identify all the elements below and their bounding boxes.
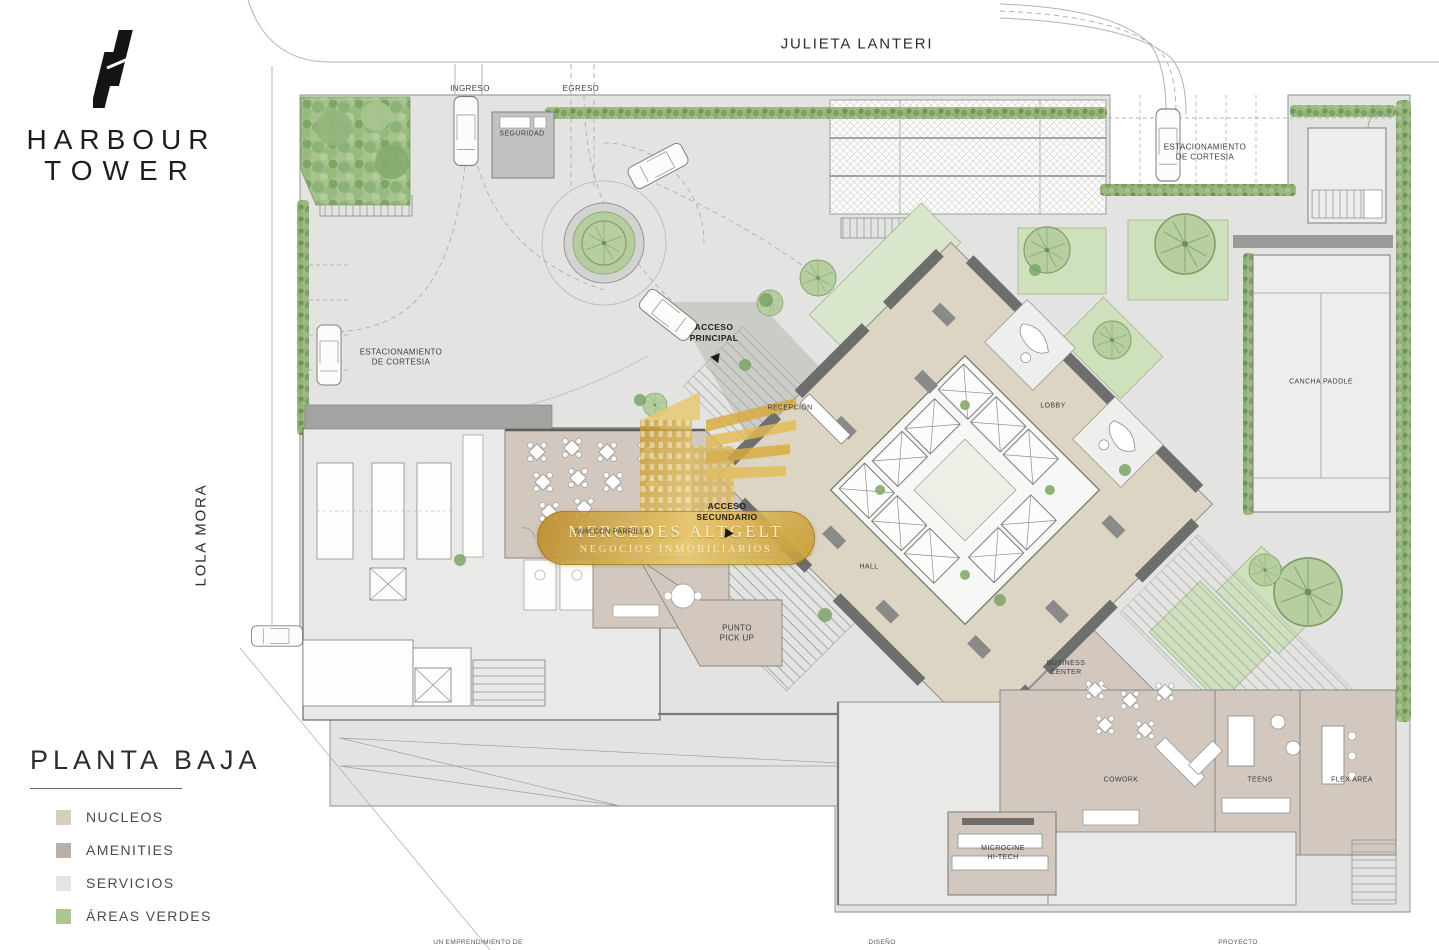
legend-item-servicios: SERVICIOS	[30, 875, 262, 891]
harbour-tower-logo-icon	[93, 28, 149, 110]
label-acceso-secundario: ACCESO SECUNDARIO	[696, 501, 757, 523]
paddle-court	[1233, 235, 1393, 512]
logo: HARBOUR TOWER	[26, 28, 216, 187]
legend: NUCLEOS AMENITIES SERVICIOS ÁREAS VERDES	[30, 809, 262, 924]
footer-proyecto: PROYECTO	[1218, 939, 1258, 947]
brand-line-1: HARBOUR	[26, 124, 216, 155]
label-egreso: EGRESO	[563, 84, 600, 94]
security-booth	[492, 112, 554, 178]
label-lobby: LOBBY	[1040, 401, 1065, 410]
label-microcine: MICROCINE HI-TECH	[981, 844, 1025, 862]
legend-item-areas-verdes: ÁREAS VERDES	[30, 908, 262, 924]
legend-swatch-areas-verdes	[56, 909, 71, 924]
street-label-julieta-lanteri: JULIETA LANTERI	[781, 34, 934, 54]
floor-plan-page: HARBOUR TOWER JULIETA LANTERI LOLA MORA …	[0, 0, 1439, 950]
legend-swatch-nucleos	[56, 810, 71, 825]
label-seguridad: SEGURIDAD	[499, 129, 544, 138]
legend-item-nucleos: NUCLEOS	[30, 809, 262, 825]
legend-swatch-servicios	[56, 876, 71, 891]
building-top-right	[1308, 112, 1386, 223]
plan-title: PLANTA BAJA	[30, 745, 262, 776]
label-recepcion: RECEPCIÓN	[767, 403, 812, 412]
watermark-tagline: NEGOCIOS INMOBILIARIOS	[580, 544, 773, 555]
label-estacionamiento-cortesia-left: ESTACIONAMIENTO DE CORTESIA	[360, 348, 443, 369]
legend-item-amenities: AMENITIES	[30, 842, 262, 858]
realtor-watermark: MERCEDES ALTGELT NEGOCIOS INMOBILIARIOS	[537, 511, 815, 565]
street-label-lola-mora: LOLA MORA	[191, 484, 211, 587]
label-punto-pick-up: PUNTO PICK UP	[720, 624, 755, 645]
label-hall: HALL	[859, 562, 878, 571]
label-sum-con-parrilla: SUM CON PARRILLA	[575, 527, 650, 536]
footer-diseno: DISEÑO	[868, 939, 895, 947]
label-cancha-paddle: CANCHA PADDLE	[1289, 377, 1353, 386]
footer-emprendimiento: UN EMPRENDIMIENTO DE	[433, 939, 523, 947]
label-flex-area: FLEX AREA	[1331, 775, 1373, 784]
label-estacionamiento-cortesia-right: ESTACIONAMIENTO DE CORTESIA	[1164, 143, 1247, 164]
label-acceso-principal: ACCESO PRINCIPAL	[690, 322, 739, 344]
garden-top-left	[301, 97, 410, 205]
title-rule	[30, 788, 182, 789]
label-cowork: COWORK	[1104, 775, 1139, 784]
parking-right	[1110, 95, 1256, 186]
label-business-center: BUSINESS CENTER	[1047, 659, 1086, 677]
brand-line-2: TOWER	[26, 155, 216, 186]
title-block: PLANTA BAJA NUCLEOS AMENITIES SERVICIOS …	[30, 745, 262, 941]
label-teens: TEENS	[1247, 775, 1272, 784]
legend-swatch-amenities	[56, 843, 71, 858]
label-ingreso: INGRESO	[450, 84, 490, 94]
